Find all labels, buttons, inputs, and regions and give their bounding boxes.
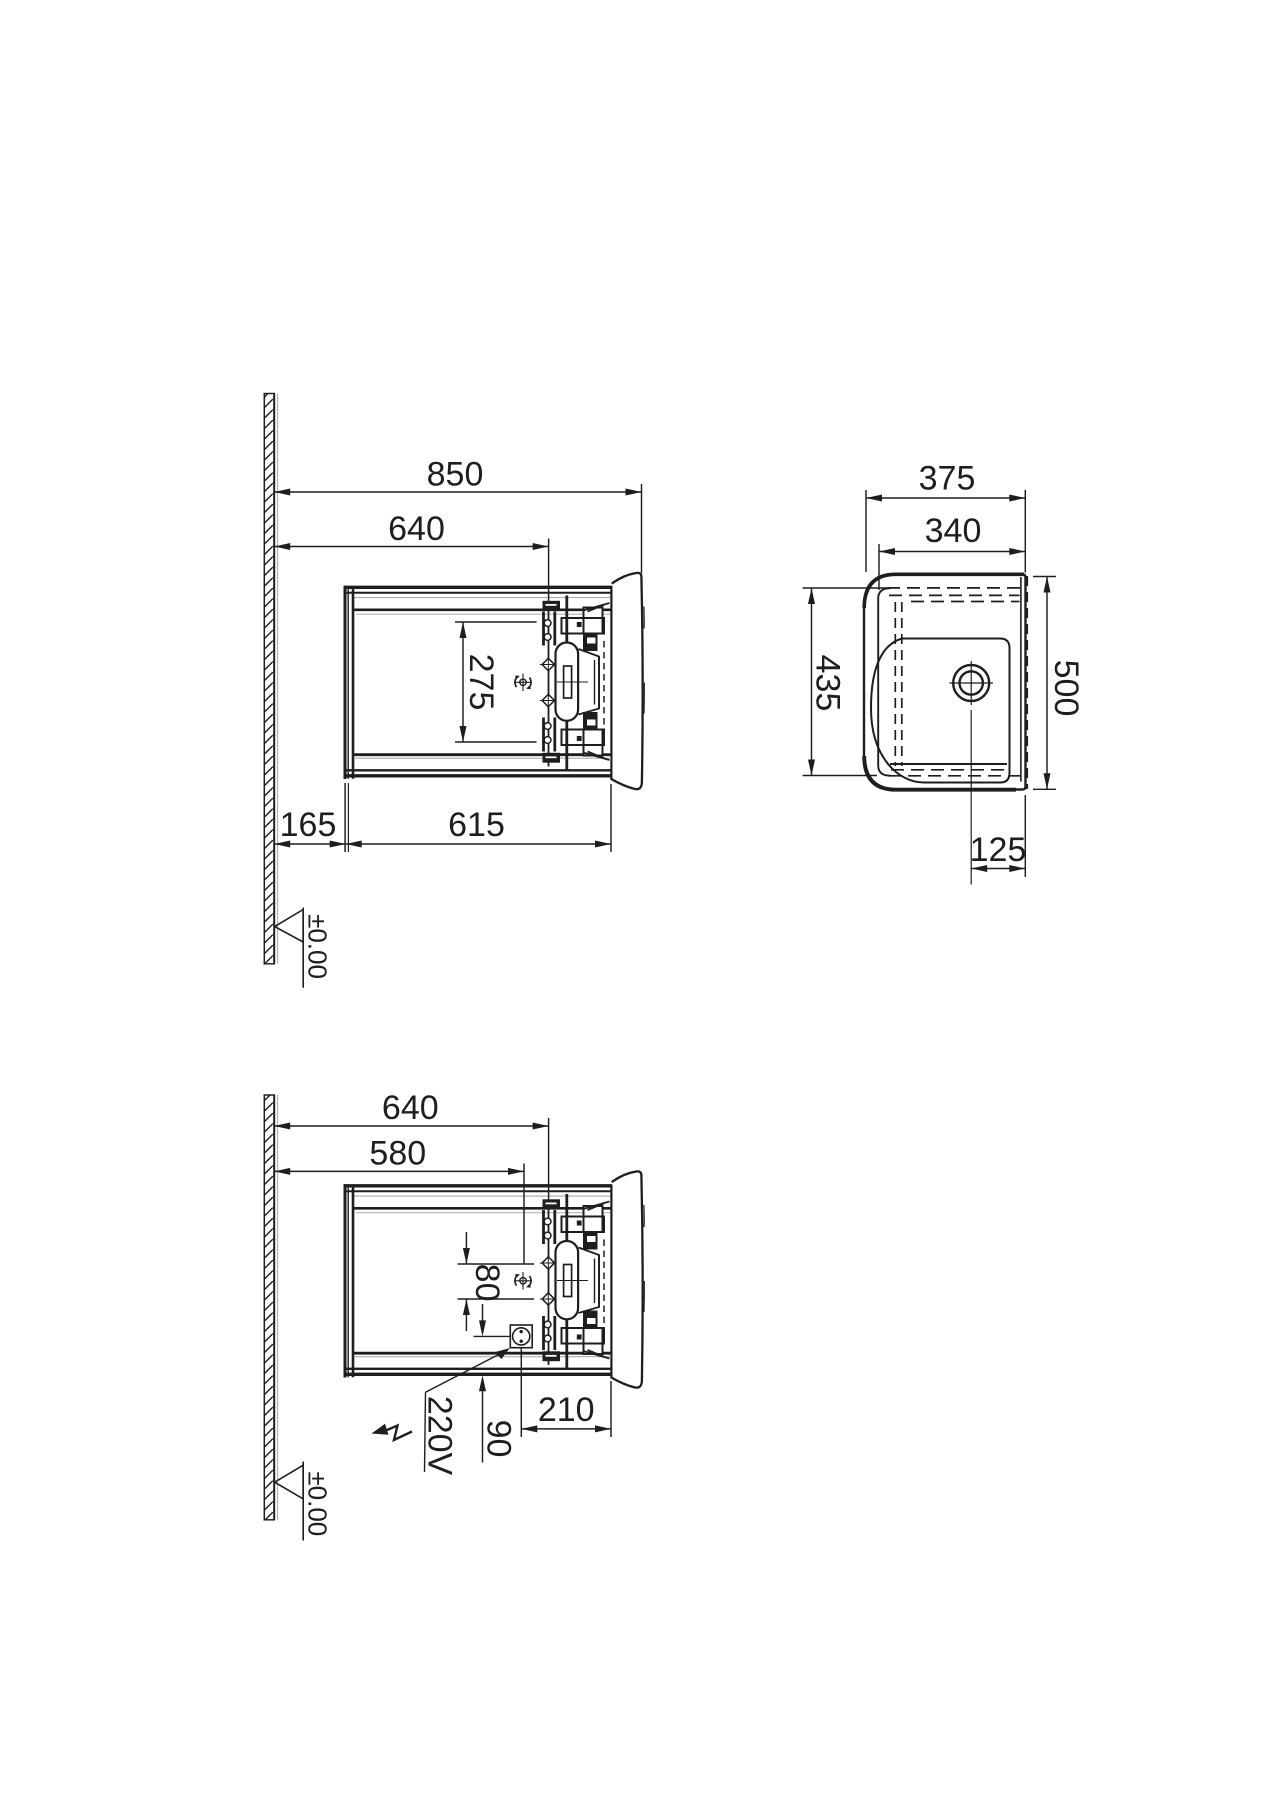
svg-text:90: 90 [480, 1420, 518, 1458]
svg-text:340: 340 [925, 512, 982, 550]
svg-text:580: 580 [369, 1135, 426, 1173]
svg-text:640: 640 [388, 510, 445, 548]
svg-text:640: 640 [382, 1089, 439, 1127]
svg-text:80: 80 [468, 1264, 506, 1302]
svg-text:375: 375 [919, 460, 976, 498]
svg-text:500: 500 [1047, 660, 1085, 717]
svg-text:615: 615 [448, 806, 505, 844]
svg-text:220V: 220V [421, 1396, 459, 1476]
svg-text:850: 850 [427, 456, 484, 494]
svg-text:210: 210 [538, 1391, 595, 1429]
svg-text:125: 125 [970, 831, 1027, 869]
svg-text:275: 275 [462, 654, 500, 711]
svg-text:±0.00: ±0.00 [303, 1471, 333, 1536]
svg-text:165: 165 [280, 806, 337, 844]
svg-text:±0.00: ±0.00 [303, 914, 333, 979]
svg-text:435: 435 [809, 655, 847, 712]
